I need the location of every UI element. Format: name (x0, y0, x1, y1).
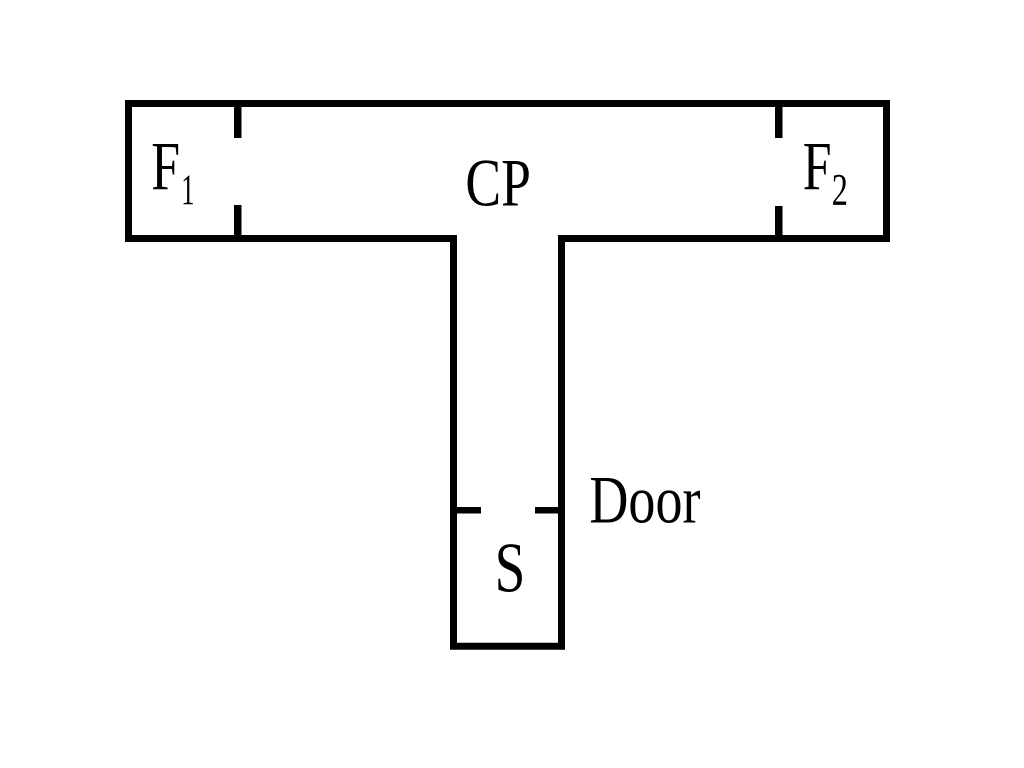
svg-text:F: F (803, 130, 832, 206)
svg-text:Door: Door (589, 463, 700, 538)
svg-text:1: 1 (181, 165, 194, 213)
svg-text:S: S (495, 528, 526, 607)
svg-text:CP: CP (465, 146, 531, 222)
svg-text:2: 2 (832, 166, 848, 215)
svg-text:F: F (151, 130, 180, 206)
